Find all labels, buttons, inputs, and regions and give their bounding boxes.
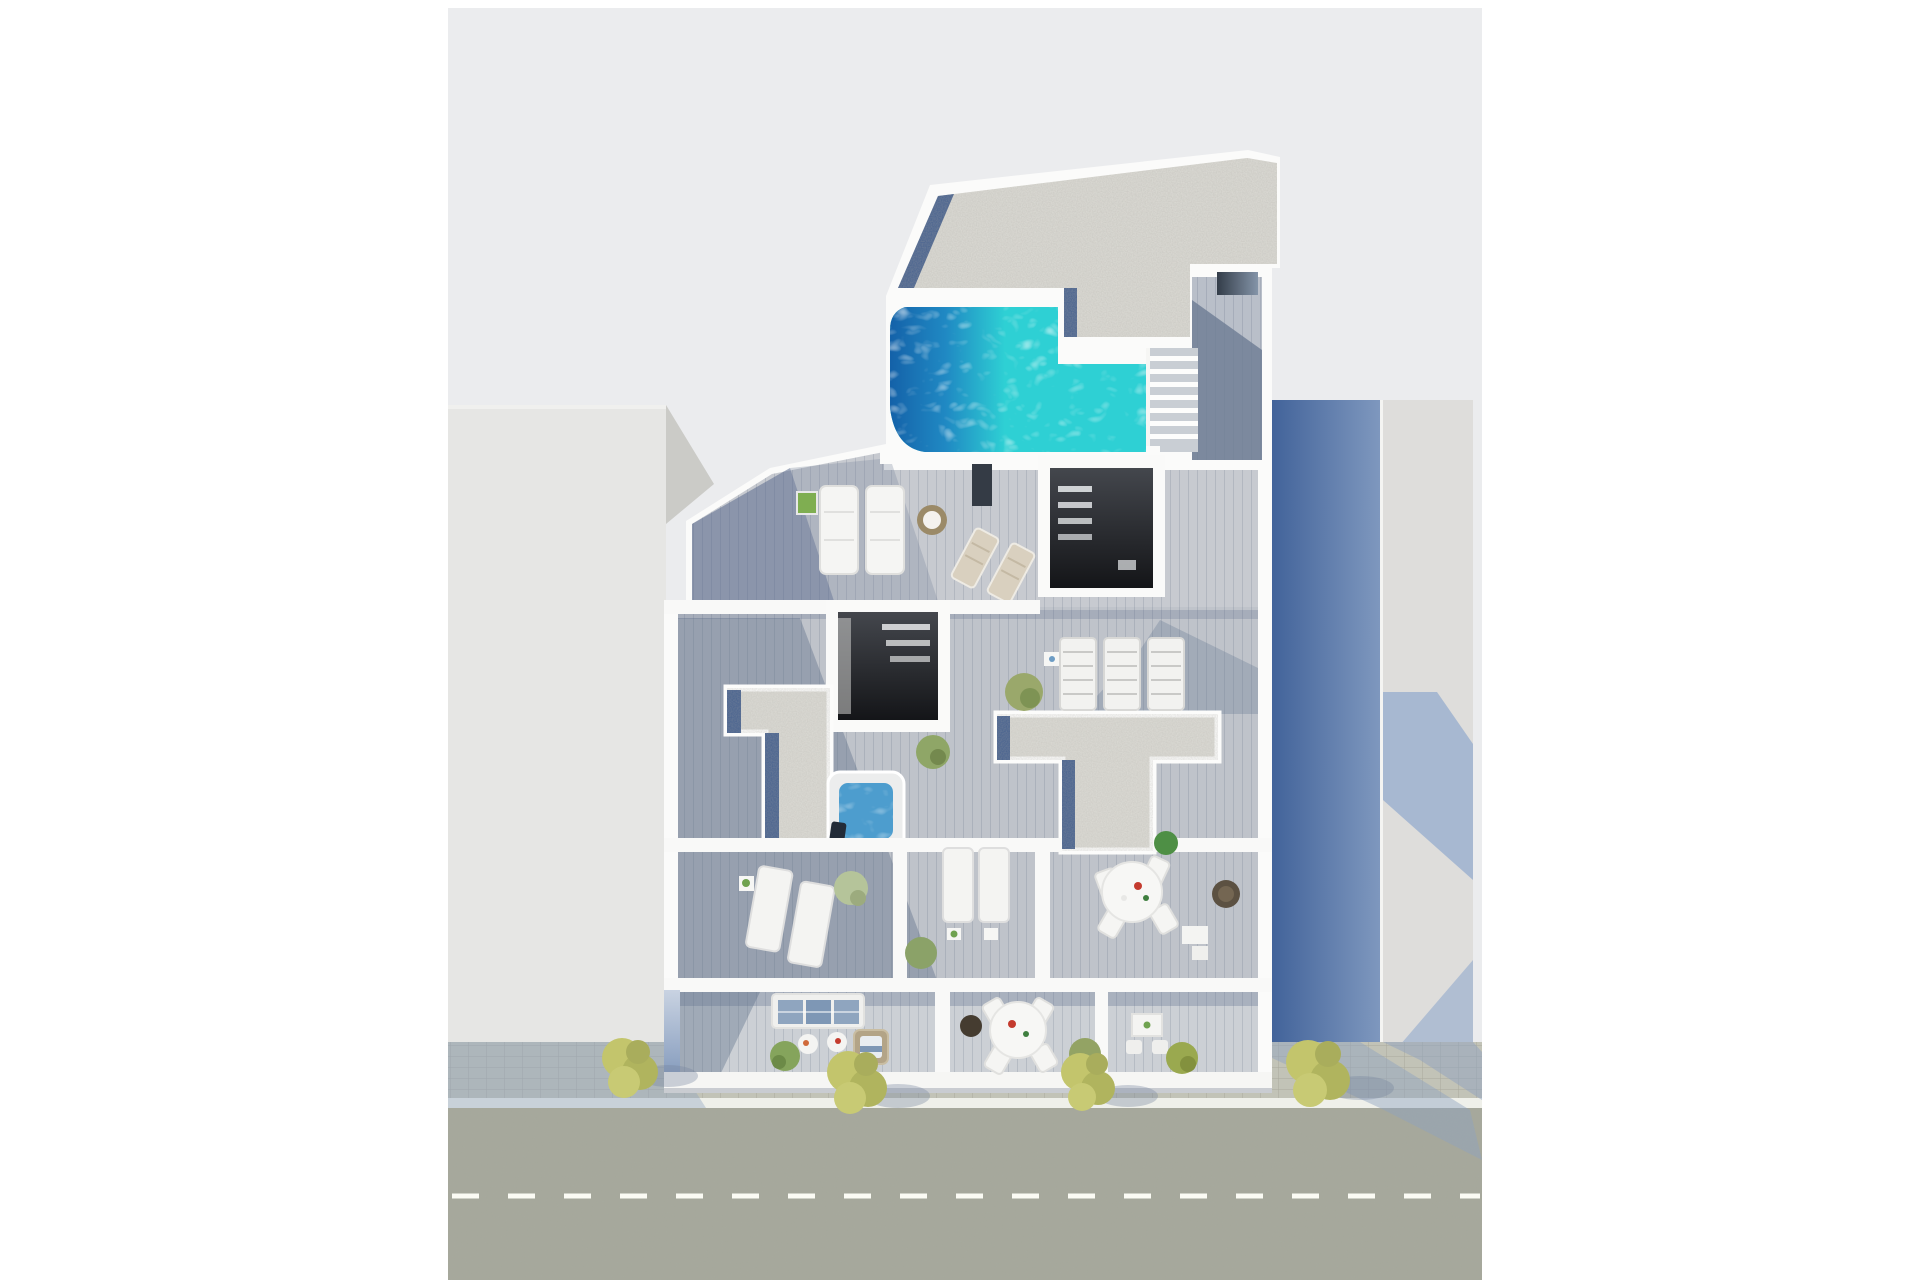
bistro-chair	[1126, 1040, 1142, 1054]
page-margin-left	[0, 0, 448, 1280]
roof-access-doorway	[1217, 272, 1258, 295]
deck-plant	[916, 735, 950, 769]
render-canvas: top-down aerial view	[0, 0, 1920, 1280]
upper-deck-walkway	[1192, 272, 1262, 460]
small-desk	[1182, 926, 1208, 944]
pool-staircase	[1146, 348, 1198, 452]
sun-lounger	[979, 848, 1009, 922]
aerial-render: top-down aerial view	[0, 0, 1920, 1280]
round-dining-table	[1102, 862, 1162, 922]
sun-lounger	[943, 848, 973, 922]
balcony-west-wall-shadow	[664, 990, 680, 1074]
day-bed	[1148, 638, 1184, 710]
neighbor-building-right	[1272, 400, 1473, 1045]
sun-lounger	[866, 486, 904, 574]
round-dining-table	[990, 1002, 1046, 1058]
right-building-shadow-wall	[1272, 400, 1383, 1045]
shrub	[905, 937, 937, 969]
wicker-pouf	[960, 1015, 982, 1037]
balcony-railing	[664, 1072, 1272, 1088]
side-table	[984, 928, 998, 940]
shrub	[1154, 831, 1178, 855]
outdoor-shower-panel	[972, 464, 992, 506]
skylight-opening-stairwell	[826, 600, 950, 732]
potted-plant	[797, 492, 817, 514]
desk-chair	[1192, 946, 1208, 960]
sofa	[772, 994, 864, 1028]
sun-lounger	[820, 486, 858, 574]
skylight-opening-upper	[1038, 455, 1165, 597]
day-bed	[1060, 638, 1096, 710]
page-margin-top	[0, 0, 1920, 8]
page-margin-right	[1482, 0, 1920, 1280]
day-bed	[1104, 638, 1140, 710]
bistro-chair	[1152, 1040, 1168, 1054]
